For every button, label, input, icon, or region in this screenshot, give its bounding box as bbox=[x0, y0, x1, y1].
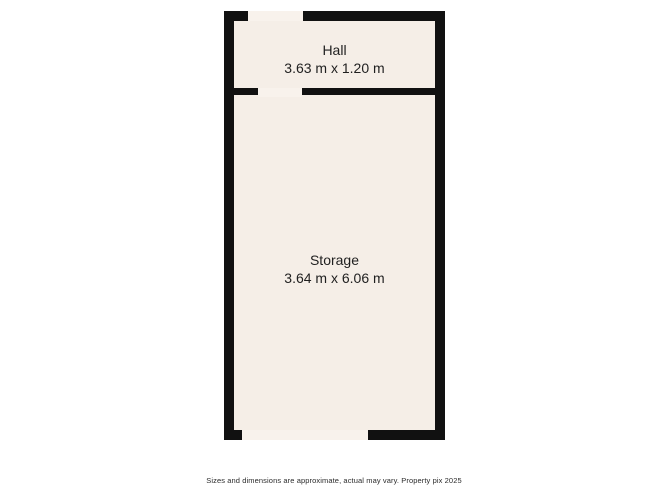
interior-wall-right-segment bbox=[302, 88, 435, 95]
door-opening-bottom-wall bbox=[242, 430, 368, 440]
storage-room-label: Storage bbox=[310, 251, 359, 269]
floorplan-canvas: Hall 3.63 m x 1.20 m Storage 3.64 m x 6.… bbox=[0, 0, 668, 501]
hall-room-label: Hall bbox=[322, 41, 346, 59]
door-opening-top-wall bbox=[248, 11, 303, 21]
hall-room-dimensions: 3.63 m x 1.20 m bbox=[284, 59, 384, 77]
interior-wall-left-segment bbox=[234, 88, 258, 95]
room-storage: Storage 3.64 m x 6.06 m bbox=[234, 95, 435, 430]
floor-plan: Hall 3.63 m x 1.20 m Storage 3.64 m x 6.… bbox=[224, 11, 445, 440]
storage-room-dimensions: 3.64 m x 6.06 m bbox=[284, 269, 384, 287]
room-hall: Hall 3.63 m x 1.20 m bbox=[234, 21, 435, 88]
disclaimer-text: Sizes and dimensions are approximate, ac… bbox=[0, 476, 668, 486]
